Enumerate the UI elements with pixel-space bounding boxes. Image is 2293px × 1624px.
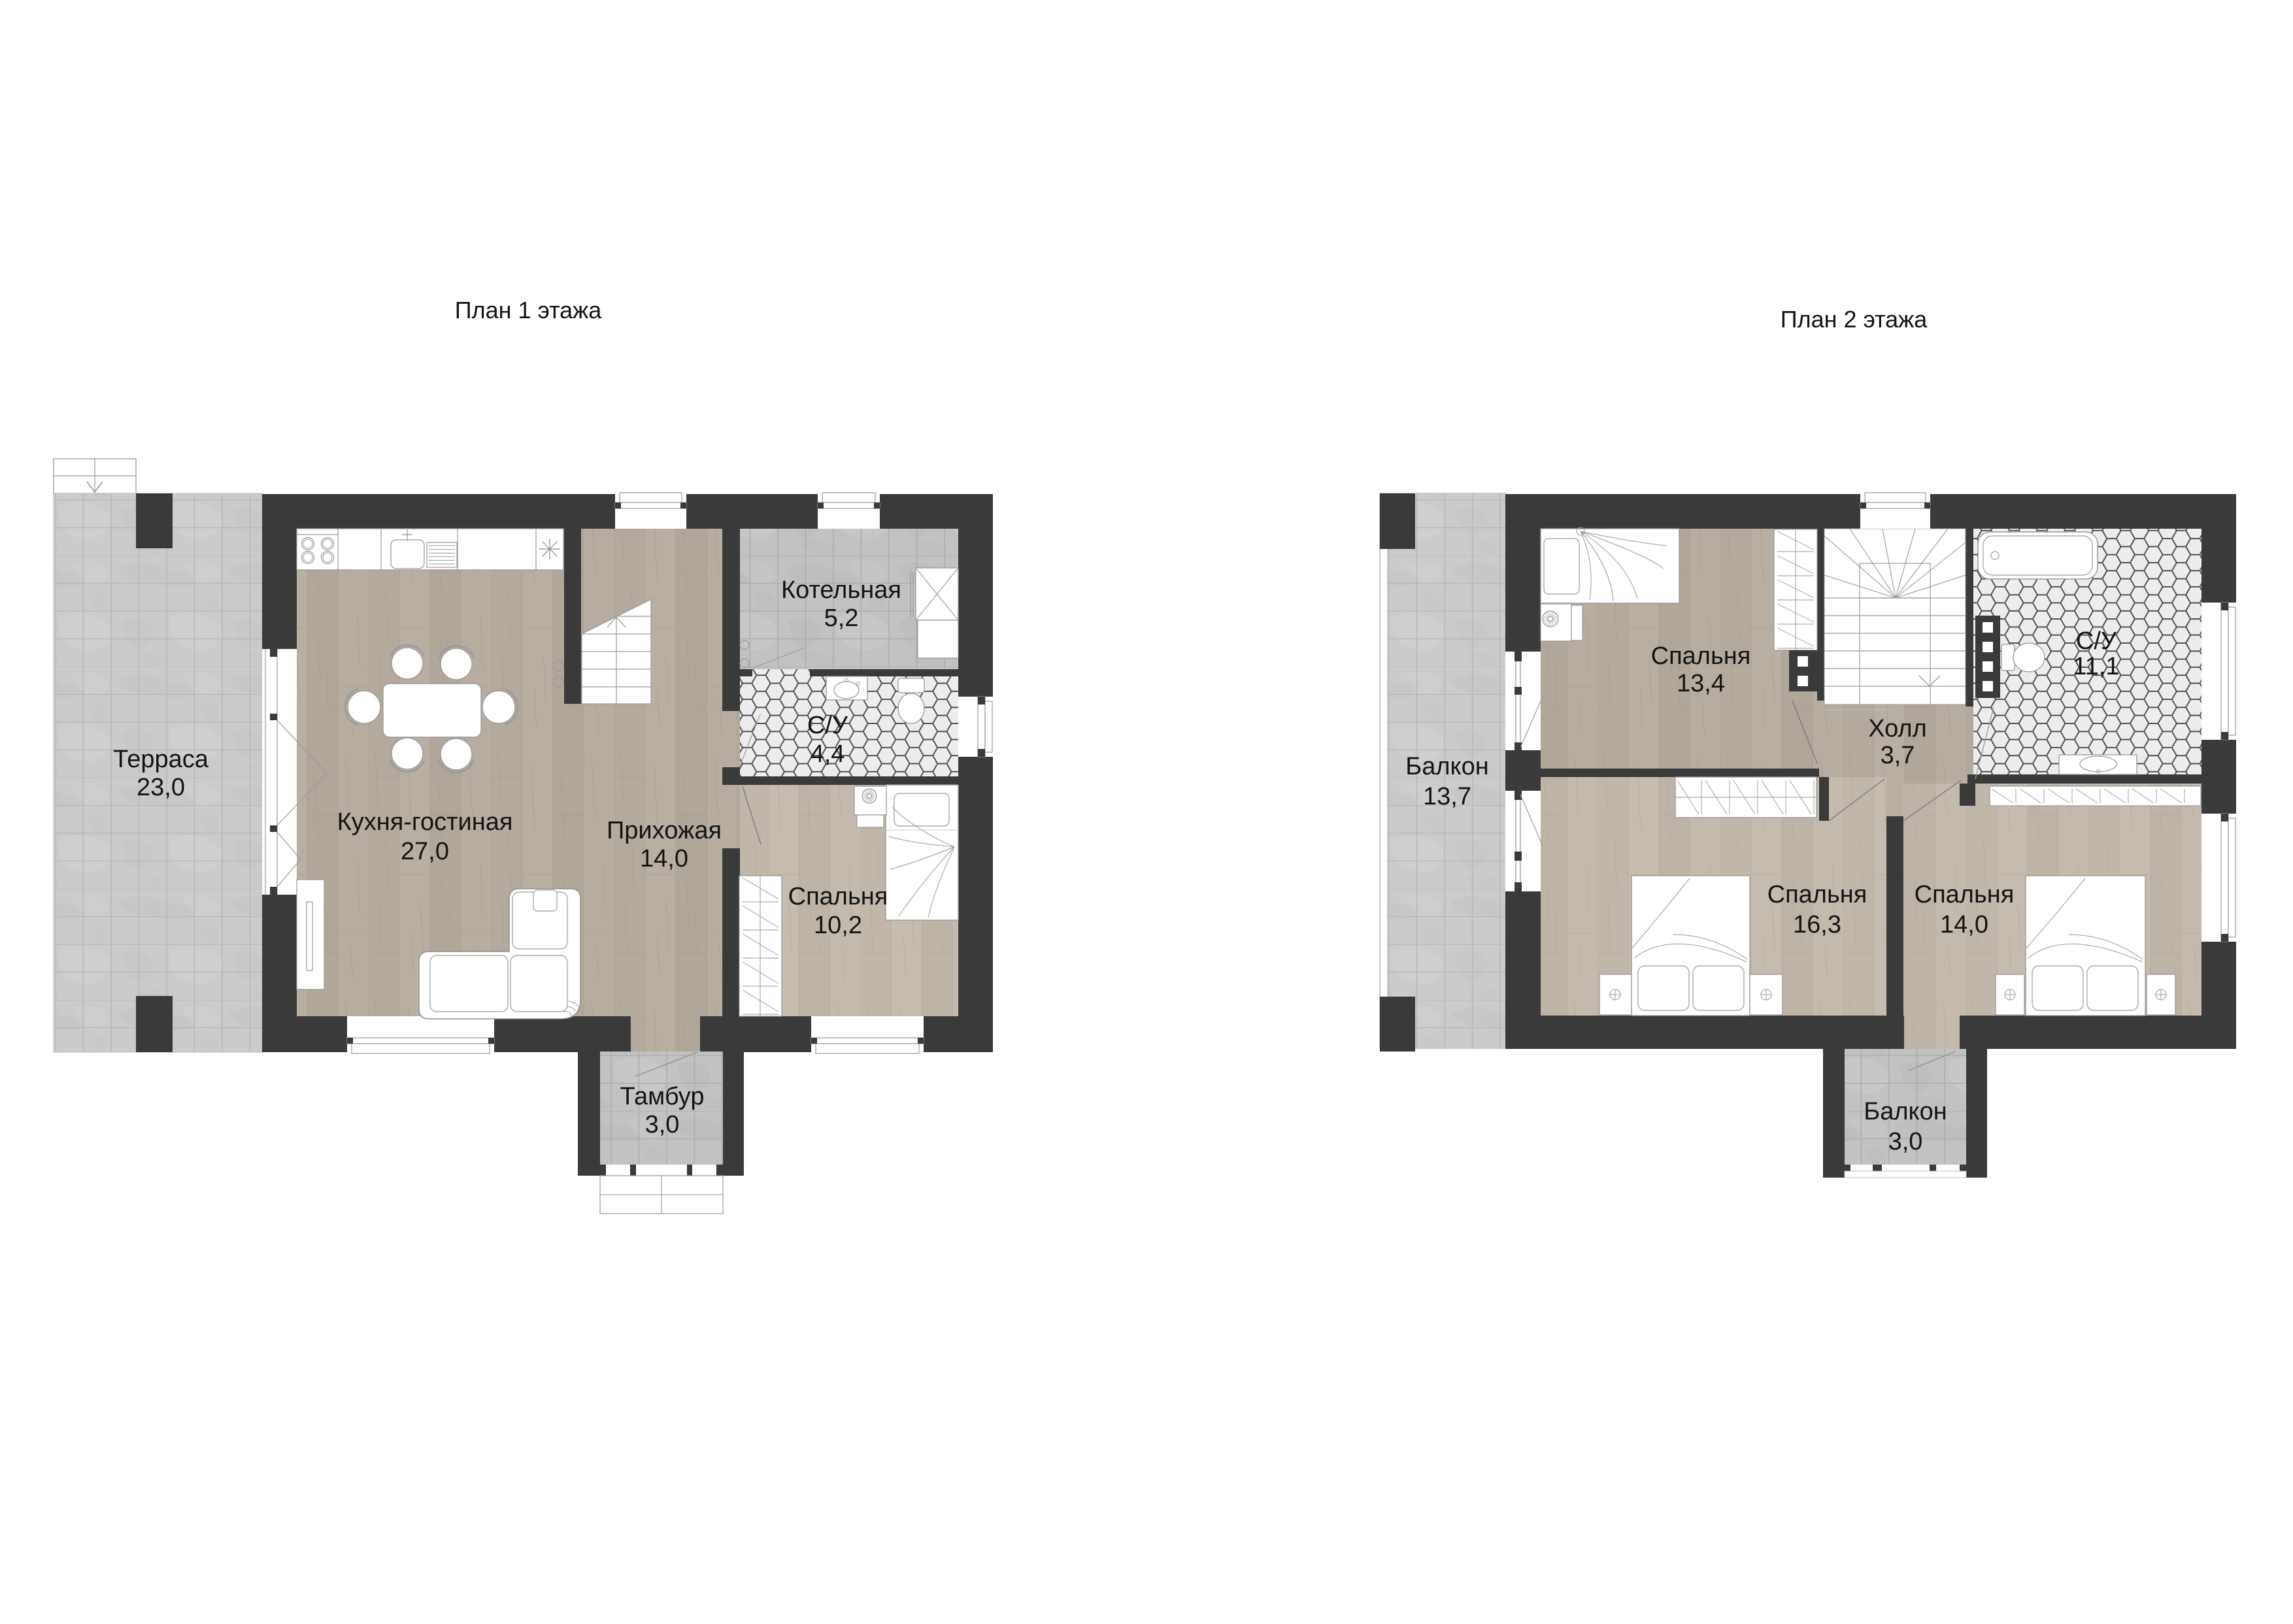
svg-text:13,7: 13,7 [1423, 783, 1471, 810]
svg-text:4,4: 4,4 [811, 740, 845, 768]
svg-text:14,0: 14,0 [640, 845, 688, 872]
svg-text:10,2: 10,2 [814, 912, 862, 939]
svg-text:Спальня: Спальня [1767, 881, 1867, 908]
svg-text:Терраса: Терраса [113, 746, 209, 773]
svg-text:3,7: 3,7 [1881, 742, 1915, 769]
svg-text:С/У: С/У [807, 712, 848, 739]
svg-text:14,0: 14,0 [1940, 911, 1988, 938]
svg-text:Балкон: Балкон [1864, 1098, 1947, 1125]
svg-text:Кухня-гостиная: Кухня-гостиная [337, 808, 513, 836]
svg-text:Спальня: Спальня [788, 883, 888, 910]
svg-text:План 1 этажа: План 1 этажа [455, 297, 603, 323]
svg-text:Тамбур: Тамбур [620, 1083, 705, 1110]
svg-text:План 2 этажа: План 2 этажа [1781, 306, 1928, 333]
svg-text:23,0: 23,0 [137, 774, 185, 801]
svg-text:13,4: 13,4 [1677, 670, 1725, 697]
svg-text:Спальня: Спальня [1915, 881, 2015, 908]
svg-text:5,2: 5,2 [824, 605, 859, 632]
svg-text:3,0: 3,0 [1888, 1128, 1923, 1155]
svg-text:Спальня: Спальня [1651, 642, 1751, 670]
svg-text:3,0: 3,0 [645, 1111, 680, 1138]
svg-text:Балкон: Балкон [1405, 753, 1488, 780]
svg-text:27,0: 27,0 [401, 838, 449, 865]
svg-text:С/У: С/У [2076, 627, 2117, 655]
svg-text:Прихожая: Прихожая [607, 817, 722, 844]
svg-text:Холл: Холл [1868, 715, 1927, 742]
svg-text:11,1: 11,1 [2073, 653, 2119, 680]
svg-text:16,3: 16,3 [1793, 911, 1841, 938]
svg-text:Котельная: Котельная [781, 576, 901, 604]
